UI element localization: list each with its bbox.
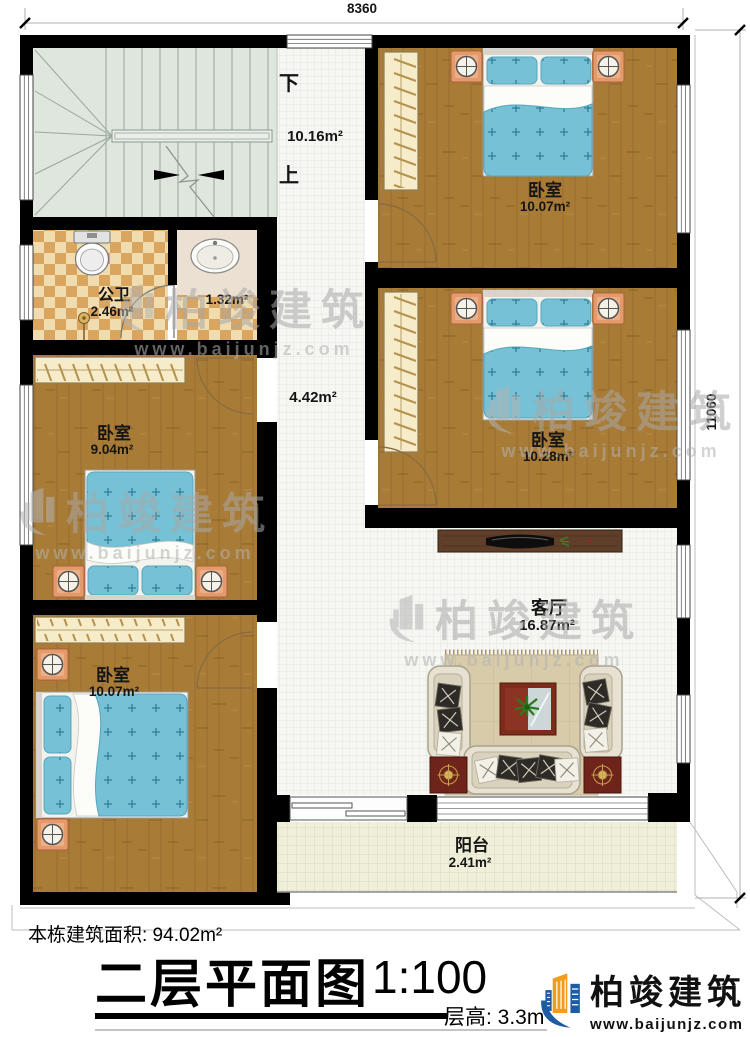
- bathroom-name: 公卫: [98, 288, 130, 305]
- window: [287, 35, 372, 48]
- hallway-floor: [277, 48, 365, 795]
- bed: [36, 692, 188, 818]
- coffee-table: [500, 683, 556, 735]
- stair-down-label: 下: [279, 74, 299, 95]
- stairwell-area: 10.16m²: [287, 129, 343, 145]
- balcony-name: 阳台: [455, 837, 489, 855]
- window: [677, 330, 690, 480]
- plan-scale: 1:100: [372, 950, 487, 1004]
- title-underline: [95, 1013, 448, 1019]
- title-underline-thin: [95, 1029, 547, 1031]
- bedroom-mid-left-name: 卧室: [97, 425, 131, 443]
- bed: [483, 290, 593, 420]
- company-logo: 柏竣建筑 www.baijunjz.com: [536, 965, 746, 1033]
- hallway-area: 4.42m²: [289, 390, 337, 406]
- dimension-width-label: 8360: [344, 2, 380, 16]
- sofa-left: [428, 666, 470, 760]
- floor-plan-page: 8360 11060 下 10.16m² 上 4.42m² 卧室 10.07m²…: [0, 0, 750, 1037]
- bedroom-top-right-name: 卧室: [528, 182, 562, 200]
- window: [437, 797, 648, 820]
- bed: [85, 470, 195, 600]
- side-table: [430, 757, 467, 793]
- sliding-door: [290, 797, 407, 820]
- tv: [486, 535, 554, 549]
- tv-cabinet: [438, 530, 622, 552]
- living-room-name: 客厅: [531, 599, 567, 618]
- window: [20, 75, 33, 200]
- bedroom-bottom-left-name: 卧室: [96, 667, 130, 685]
- window: [677, 85, 690, 233]
- living-room-area: 16.87m²: [519, 618, 575, 634]
- bedroom-mid-left-area: 9.04m²: [91, 443, 134, 457]
- bedroom-bottom-left-area: 10.07m²: [89, 685, 139, 699]
- dimension-height-label: 11060: [705, 391, 719, 434]
- window: [20, 385, 33, 545]
- sink: [191, 239, 239, 273]
- bed: [483, 48, 593, 176]
- toilet: [74, 231, 110, 275]
- sofa-bottom: [464, 746, 580, 794]
- window: [677, 545, 690, 618]
- bedroom-mid-right-area: 10.28m²: [523, 450, 573, 464]
- plan-title: 二层平面图: [95, 942, 370, 1017]
- bedroom-top-right-area: 10.07m²: [520, 200, 570, 214]
- bathroom-area: 2.46m²: [91, 305, 134, 319]
- window: [677, 695, 690, 763]
- floor-plan-drawing: [0, 0, 750, 1037]
- balcony-area: 2.41m²: [449, 856, 492, 870]
- washroom-area: 1.32m²: [206, 293, 249, 307]
- side-table: [584, 757, 621, 793]
- stair-up-label: 上: [279, 166, 299, 187]
- company-url: www.baijunjz.com: [590, 1016, 746, 1033]
- floor-height-note: 层高: 3.3m: [444, 1001, 544, 1031]
- company-logo-icon: [536, 971, 584, 1029]
- company-name: 柏竣建筑: [590, 965, 746, 1014]
- sofa-right: [580, 666, 622, 760]
- window: [20, 245, 33, 320]
- bedroom-mid-right-name: 卧室: [531, 432, 565, 450]
